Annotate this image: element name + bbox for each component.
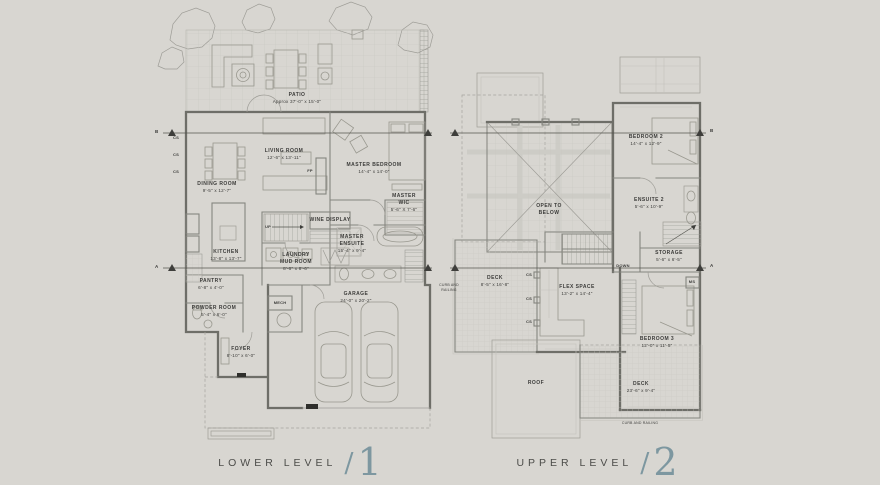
room-label-foyer: FOYER 8'-10" x 6'-0"	[227, 346, 256, 359]
cs-annotation: CS	[526, 296, 532, 301]
room-label-roof: ROOF	[528, 380, 544, 387]
lower-level-title-text: LOWER LEVEL	[218, 457, 336, 478]
room-label-master-bedroom: MASTER BEDROOM 14'-4" x 14'-0"	[347, 162, 402, 175]
mech-annotation: MECH	[274, 300, 287, 305]
room-label-deck-upper: DECK 8'-5" x 16'-8"	[481, 275, 510, 288]
upper-level-title-separator: /	[640, 452, 649, 476]
curb-and-railing-annotation: CURB AND RAILING	[439, 283, 459, 292]
room-label-master-ensuite: MASTER ENSUITE 15'-4" x 9'-4"	[338, 234, 367, 253]
lower-level-title: LOWER LEVEL / 1	[218, 447, 381, 478]
room-label-storage: STORAGE 5'-6" x 6'-5"	[655, 250, 683, 263]
room-label-powder-room: POWDER ROOM 5'-4" x 6'-0"	[192, 305, 236, 318]
up-annotation: UP	[265, 224, 271, 229]
room-label-master-wic: MASTER WIC 5'-6" X 7'-6"	[391, 193, 418, 212]
room-label-kitchen: KITCHEN 13'-8" x 13'-7"	[210, 249, 241, 262]
ms-annotation: MS	[689, 279, 695, 284]
room-label-patio: PATIO Approx 37'-0" x 15'-0"	[273, 92, 322, 105]
down-annotation: DOWN	[616, 263, 629, 268]
room-label-dining-room: DINING ROOM 9'-5" x 12'-7"	[197, 181, 236, 194]
section-marker-a: A	[155, 264, 158, 269]
upper-level-title-text: UPPER LEVEL	[516, 457, 632, 478]
upper-level-title: UPPER LEVEL / 2	[516, 447, 677, 478]
floor-plan-sheet: PATIO Approx 37'-0" x 15'-0" LIVING ROOM…	[0, 0, 880, 485]
cs-annotation: CS	[173, 135, 179, 140]
room-label-laundry-mud-room: LAUNDRY MUD ROOM 8'-6" x 8'-6"	[280, 252, 312, 271]
lower-plan	[158, 2, 433, 439]
room-label-bedroom-3: BEDROOM 3 12'-0" x 11'-5"	[640, 336, 674, 349]
lower-level-title-separator: /	[344, 452, 353, 476]
plan-drawing	[0, 0, 880, 485]
room-label-deck-lower: DECK 23'-6" x 9'-4"	[627, 381, 656, 394]
curb-and-railing-annotation: CURB AND RAILING	[622, 421, 658, 426]
room-label-open-to-below: OPEN TO BELOW	[536, 203, 562, 216]
cs-annotation: CS	[173, 169, 179, 174]
section-marker-b: B	[155, 129, 158, 134]
room-label-pantry: PANTRY 6'-8" x 4'-0"	[198, 278, 224, 291]
section-marker-a: A	[710, 263, 713, 268]
room-label-flex-space: FLEX SPACE 13'-2" x 14'-4"	[559, 284, 595, 297]
upper-plan	[450, 57, 706, 438]
fireplace-annotation: FP	[307, 168, 313, 173]
cs-annotation: CS	[526, 272, 532, 277]
room-label-garage: GARAGE 24'-0" x 20'-2"	[340, 291, 371, 304]
cs-annotation: CS	[526, 319, 532, 324]
room-label-living-room: LIVING ROOM 12'-6" x 13'-11"	[265, 148, 304, 161]
cs-annotation: CS	[173, 152, 179, 157]
room-label-bedroom-2: BEDROOM 2 14'-4" x 12'-9"	[629, 134, 663, 147]
lower-level-number: 1	[358, 447, 382, 478]
room-label-wine-display: WINE DISPLAY	[309, 217, 350, 224]
room-label-ensuite-2: ENSUITE 2 5'-6" x 10'-9"	[634, 197, 664, 210]
section-marker-b: B	[710, 128, 713, 133]
upper-level-number: 2	[653, 447, 677, 478]
